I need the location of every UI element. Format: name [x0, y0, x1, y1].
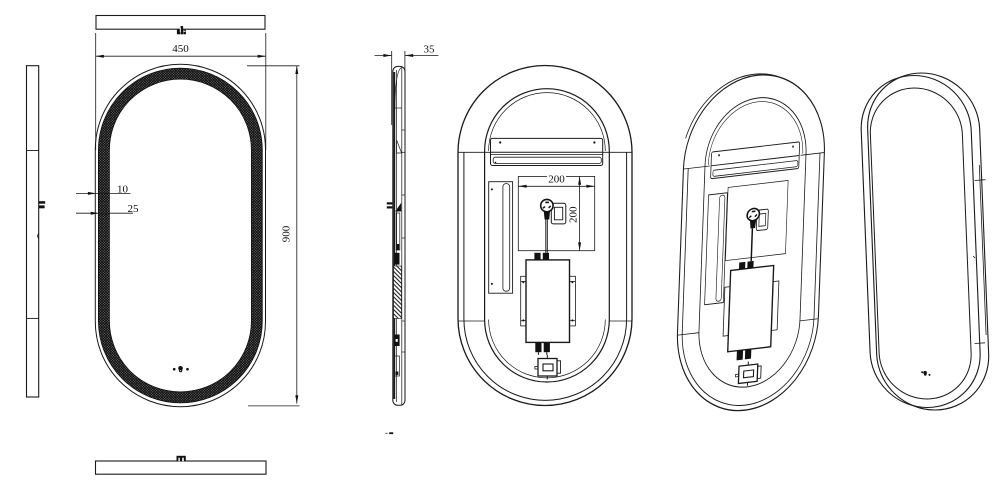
svg-text:900: 900	[281, 225, 293, 242]
svg-text:200: 200	[568, 206, 580, 223]
svg-text:450: 450	[172, 43, 189, 55]
svg-text:200: 200	[548, 174, 565, 186]
svg-text:25: 25	[128, 203, 140, 215]
svg-text:35: 35	[424, 43, 436, 55]
svg-text:10: 10	[117, 183, 129, 195]
